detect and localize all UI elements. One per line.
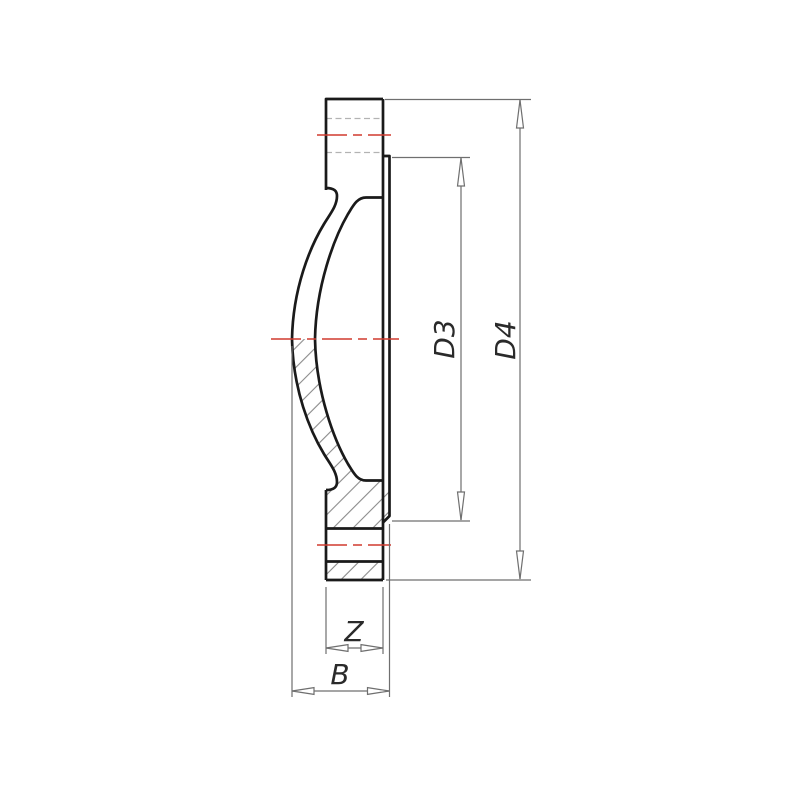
b-arrow-left-icon <box>292 688 314 695</box>
z-arrow-right-icon <box>361 645 383 652</box>
rim-top-outline <box>326 99 383 190</box>
b-label: B <box>330 658 349 691</box>
drawing-canvas: D3 D4 Z B <box>0 0 800 800</box>
b-arrow-right-icon <box>368 688 390 695</box>
d3-arrow-up-icon <box>458 158 465 186</box>
z-label: Z <box>343 615 364 648</box>
d4-label: D4 <box>489 320 522 359</box>
d3-arrow-down-icon <box>458 492 465 520</box>
section-hatching <box>292 339 390 580</box>
d4-arrow-down-icon <box>517 551 524 579</box>
d4-arrow-up-icon <box>517 100 524 128</box>
flange-technical-drawing: D3 D4 Z B <box>0 0 800 800</box>
d3-label: D3 <box>428 319 461 358</box>
